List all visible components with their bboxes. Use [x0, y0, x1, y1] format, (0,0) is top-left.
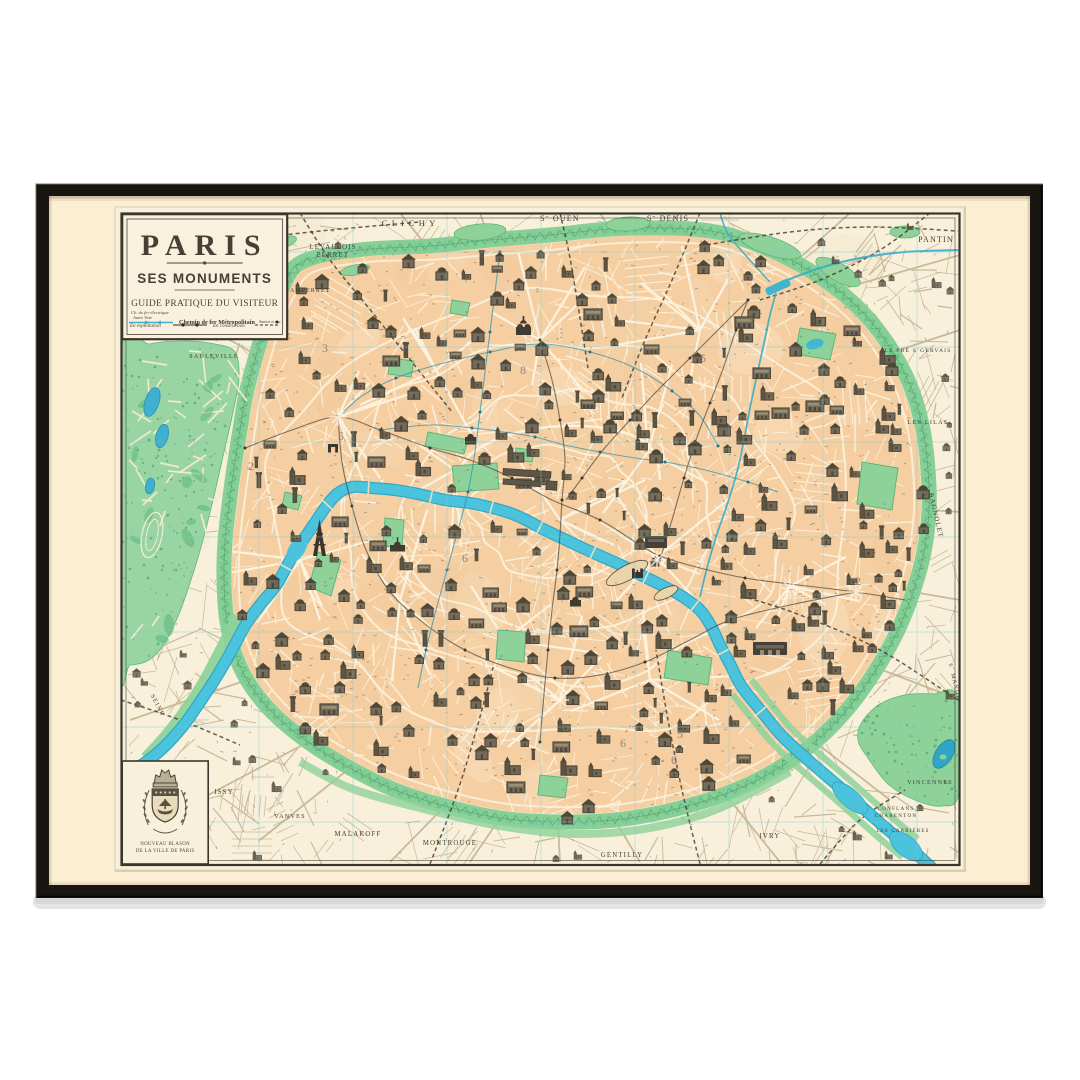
svg-text:5: 5 [677, 727, 683, 741]
svg-text:GENTILLY: GENTILLY [601, 852, 644, 859]
svg-text:NOUVEAU BLASON: NOUVEAU BLASON [140, 842, 190, 847]
svg-text:2: 2 [855, 574, 861, 588]
svg-text:PARIS: PARIS [141, 229, 269, 262]
svg-text:Sˉ DENIS: Sˉ DENIS [647, 214, 689, 223]
svg-text:Sˉ OUEN: Sˉ OUEN [540, 214, 580, 223]
svg-text:6: 6 [620, 736, 626, 750]
svg-text:Autre Voie: Autre Voie [132, 315, 152, 320]
svg-text:CHARENTON: CHARENTON [875, 813, 918, 819]
svg-text:VANVES: VANVES [274, 813, 306, 820]
svg-text:LES LILAS: LES LILAS [908, 419, 949, 426]
svg-text:DE LA VILLE DE PARIS: DE LA VILLE DE PARIS [136, 849, 195, 854]
svg-text:LE PRÉ SˉGERVAIS: LE PRÉ SˉGERVAIS [884, 346, 951, 354]
svg-text:LES CARRIÈRES: LES CARRIÈRES [876, 828, 929, 834]
svg-text:SAULEVILLE: SAULEVILLE [189, 353, 239, 360]
svg-text:VINCENNES: VINCENNES [907, 779, 953, 786]
svg-text:En exploitation: En exploitation [129, 324, 161, 329]
svg-text:6: 6 [462, 551, 468, 565]
svg-text:C L I C H Y: C L I C H Y [382, 218, 437, 228]
svg-text:3: 3 [322, 341, 328, 355]
svg-text:PANTIN: PANTIN [918, 235, 954, 244]
svg-text:CONFLANS: CONFLANS [878, 806, 915, 812]
svg-text:MALAKOFF: MALAKOFF [335, 831, 382, 838]
svg-text:8: 8 [520, 363, 526, 377]
svg-text:LEVALLOIS: LEVALLOIS [309, 244, 356, 251]
svg-text:SES MONUMENTS: SES MONUMENTS [137, 271, 272, 286]
svg-text:PERRET: PERRET [317, 252, 350, 259]
svg-text:En construction: En construction [212, 324, 245, 329]
svg-text:MONTROUGE: MONTROUGE [423, 840, 477, 847]
svg-text:GUIDE PRATIQUE DU VISITEUR: GUIDE PRATIQUE DU VISITEUR [131, 299, 279, 309]
svg-text:ISSY: ISSY [214, 789, 234, 796]
svg-text:IVRY: IVRY [759, 833, 780, 840]
svg-text:5: 5 [338, 429, 344, 443]
svg-text:5: 5 [700, 351, 706, 365]
svg-text:2: 2 [248, 459, 254, 473]
svg-text:6: 6 [671, 753, 677, 767]
